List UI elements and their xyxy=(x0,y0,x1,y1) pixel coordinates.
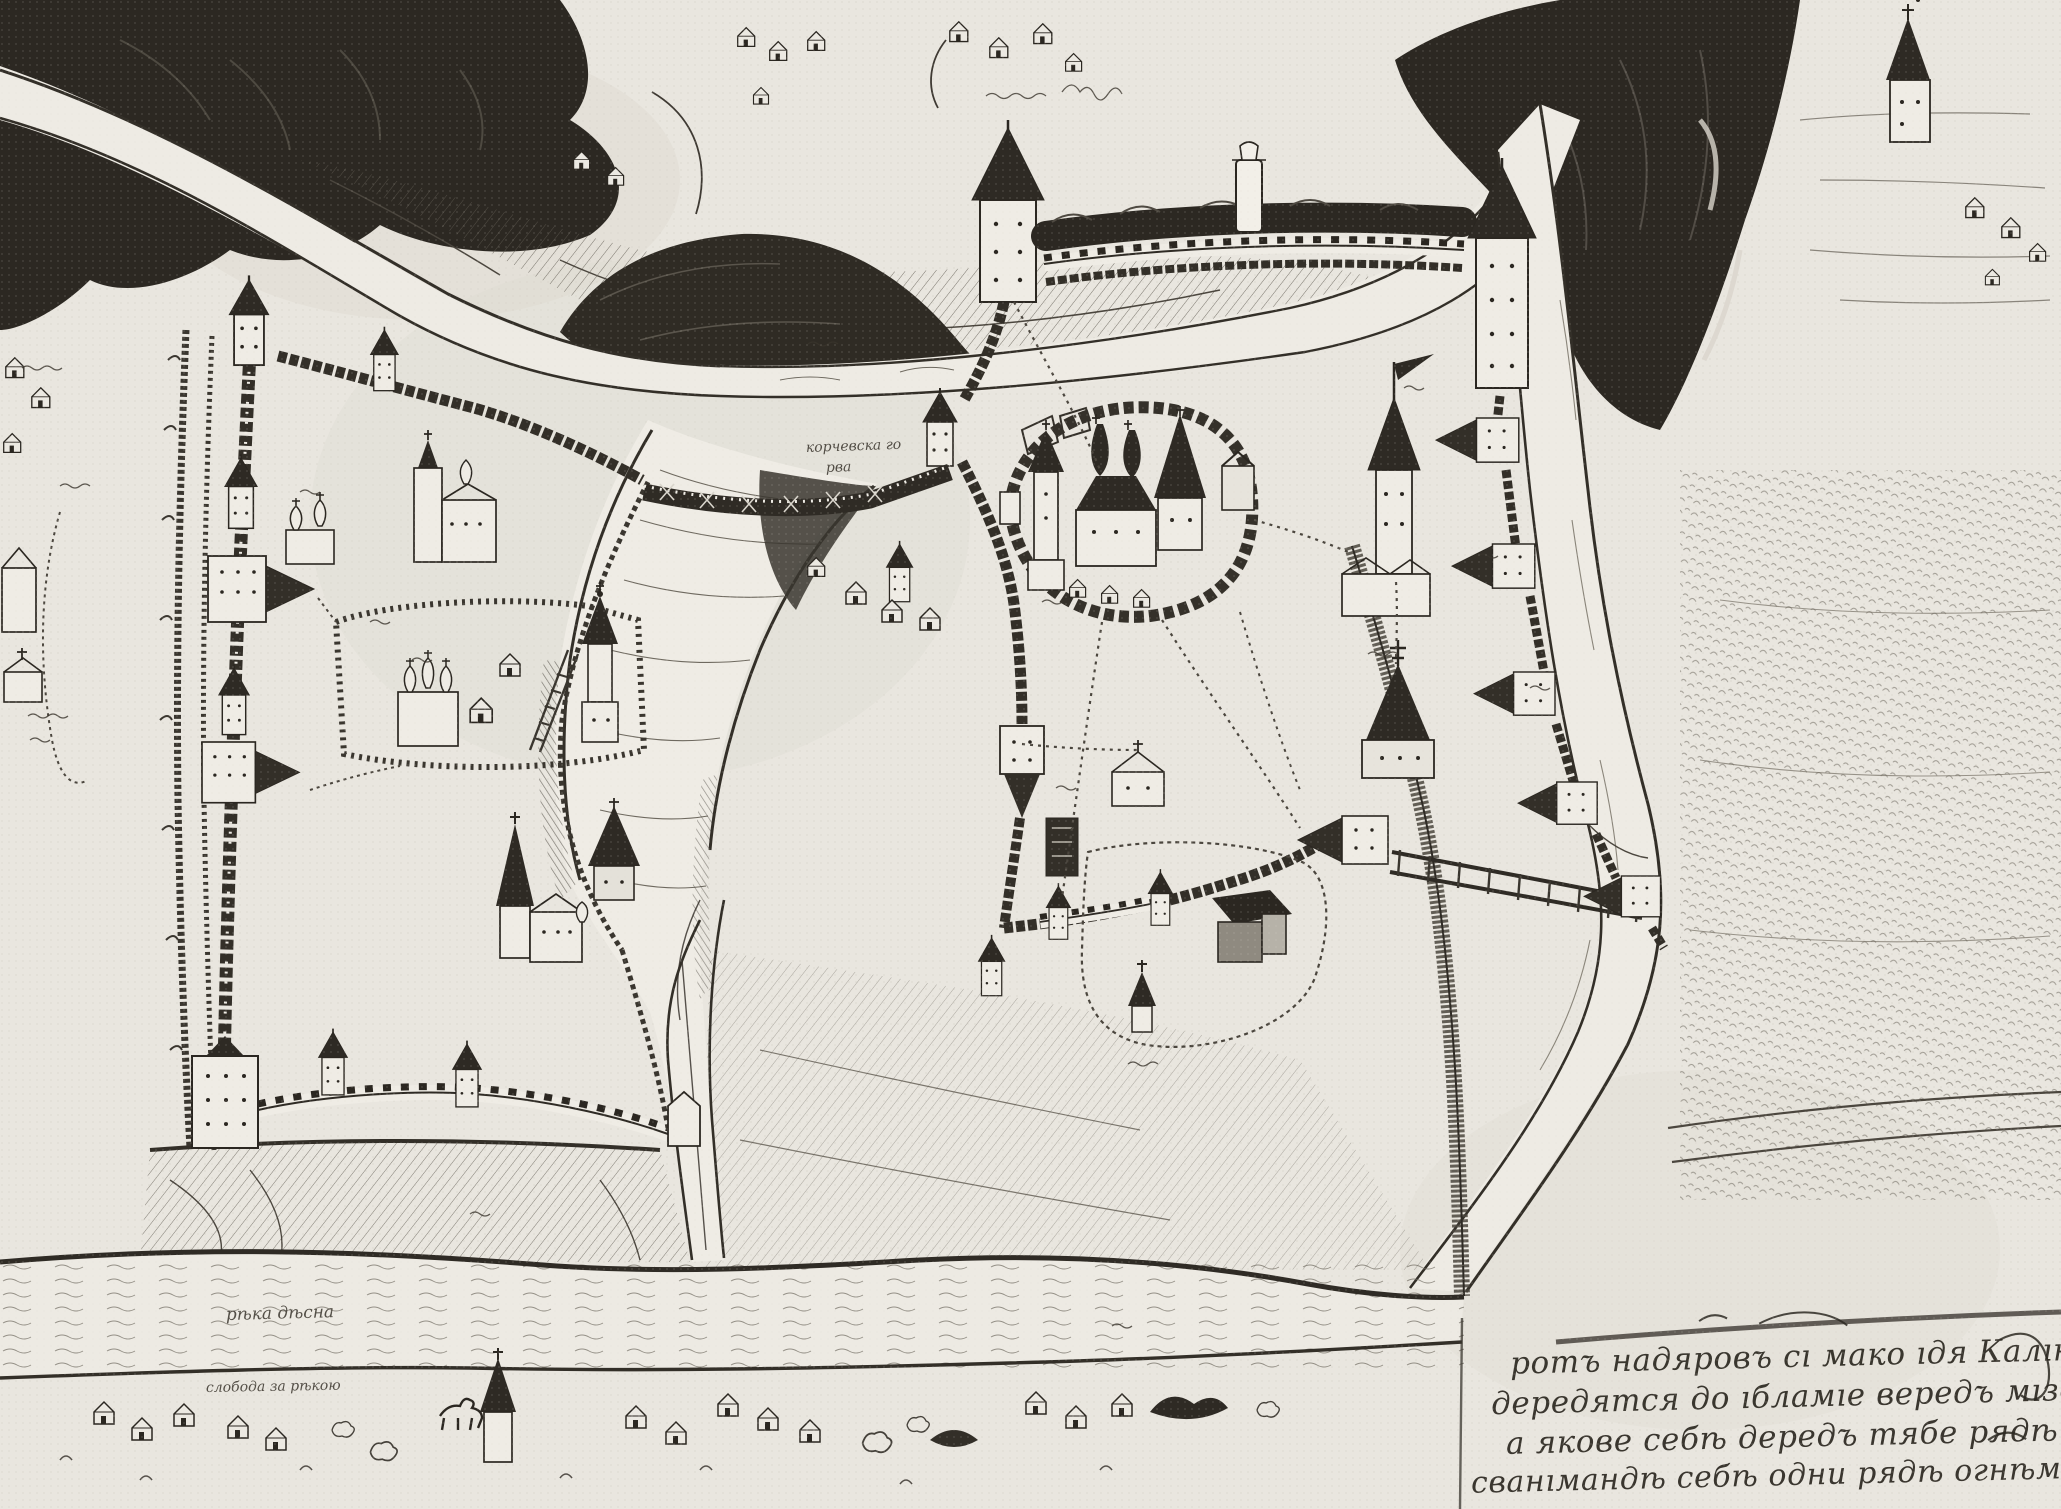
halftone-overlay xyxy=(0,0,2061,1509)
engraved-map-page: корчевска го рва рѣка дѣсна слобода за р… xyxy=(0,0,2061,1509)
city-plan-engraving: корчевска го рва рѣка дѣсна слобода за р… xyxy=(0,0,2061,1509)
